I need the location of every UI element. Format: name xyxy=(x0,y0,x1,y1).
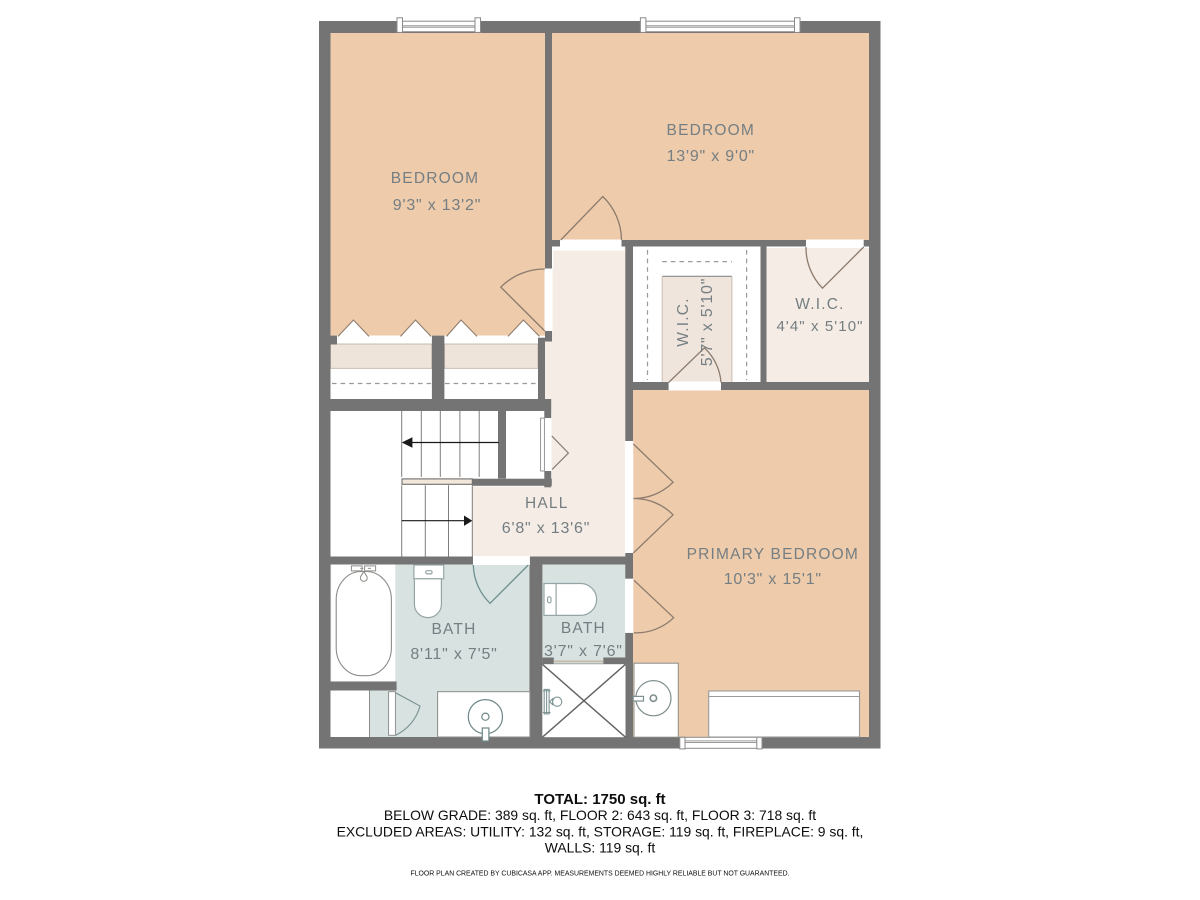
svg-text:BEDROOM: BEDROOM xyxy=(667,122,756,139)
svg-text:BELOW GRADE: 389 sq. ft, FLOOR: BELOW GRADE: 389 sq. ft, FLOOR 2: 643 sq… xyxy=(384,807,816,823)
svg-text:W.I.C.: W.I.C. xyxy=(795,296,844,313)
svg-text:BATH: BATH xyxy=(432,621,477,638)
svg-text:EXCLUDED AREAS: UTILITY: 132 s: EXCLUDED AREAS: UTILITY: 132 sq. ft, STO… xyxy=(337,823,864,839)
svg-text:PRIMARY BEDROOM: PRIMARY BEDROOM xyxy=(687,546,859,563)
svg-text:W.I.C.: W.I.C. xyxy=(675,297,692,346)
svg-text:BATH: BATH xyxy=(561,620,606,637)
svg-text:6'8" x 13'6": 6'8" x 13'6" xyxy=(502,520,590,537)
svg-text:8'11" x 7'5": 8'11" x 7'5" xyxy=(410,646,497,663)
svg-text:TOTAL: 1750 sq. ft: TOTAL: 1750 sq. ft xyxy=(534,791,665,808)
svg-text:5'7" x 5'10": 5'7" x 5'10" xyxy=(699,278,716,366)
svg-text:13'9" x 9'0": 13'9" x 9'0" xyxy=(667,148,755,165)
svg-text:FLOOR PLAN CREATED BY CUBICASA: FLOOR PLAN CREATED BY CUBICASA APP. MEAS… xyxy=(411,871,790,878)
svg-text:WALLS: 119 sq. ft: WALLS: 119 sq. ft xyxy=(545,840,656,856)
svg-text:3'7" x 7'6": 3'7" x 7'6" xyxy=(544,643,623,660)
svg-text:HALL: HALL xyxy=(525,495,569,512)
svg-text:4'4" x 5'10": 4'4" x 5'10" xyxy=(776,318,863,335)
svg-text:10'3" x 15'1": 10'3" x 15'1" xyxy=(724,571,822,588)
svg-text:BEDROOM: BEDROOM xyxy=(391,170,480,187)
svg-text:9'3" x 13'2": 9'3" x 13'2" xyxy=(393,197,481,214)
